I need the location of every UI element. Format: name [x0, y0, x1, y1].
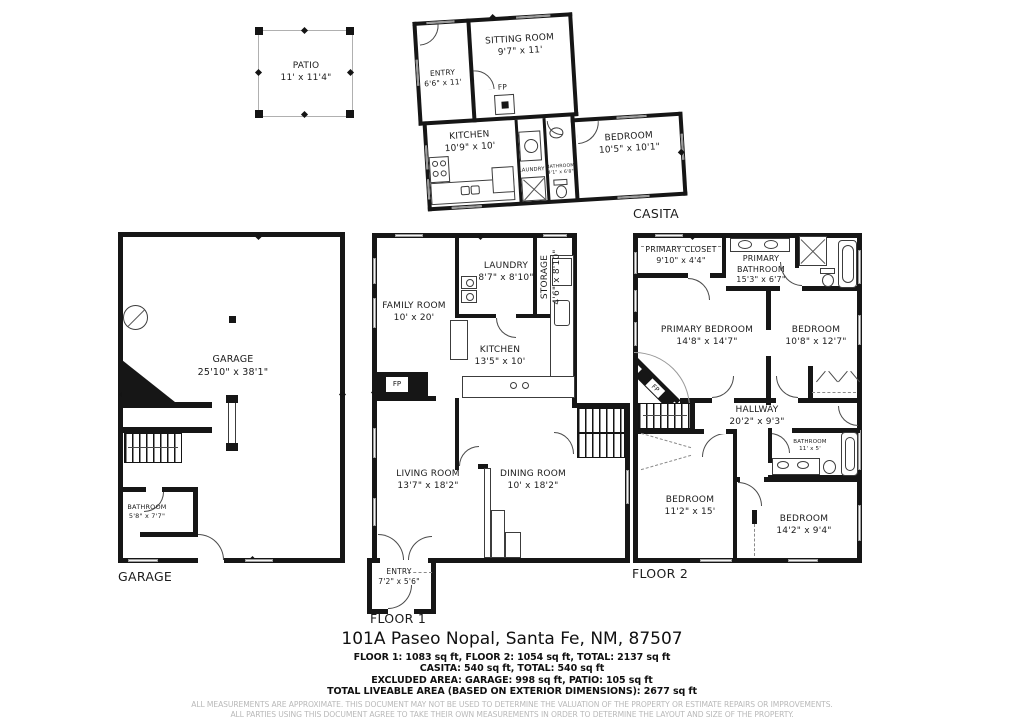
fixture [522, 382, 529, 389]
shape: GARAGE [213, 354, 254, 367]
beam [228, 398, 236, 448]
door-arc [554, 432, 574, 454]
sink-icon [460, 186, 470, 196]
bathtub-icon [841, 432, 858, 476]
shape: BEDROOM [792, 325, 840, 337]
floor2-bathroom-label: BATHROOM11' x 5' [778, 438, 842, 454]
shower-icon [799, 236, 827, 266]
shape: 10'5" x 10'1" [599, 142, 661, 158]
window [788, 559, 818, 562]
stove-icon [429, 156, 451, 183]
shape: 14'2" x 9'4" [776, 526, 831, 538]
living-room-label: LIVING ROOM13'7" x 18'2" [380, 468, 476, 494]
shape: 9'10" x 4'4" [656, 256, 705, 267]
shape: 5'8" x 7'7" [129, 512, 165, 521]
window [634, 322, 637, 346]
shape: LAUNDRY [518, 166, 544, 174]
window [634, 252, 637, 274]
shape: LAUNDRY [484, 261, 528, 273]
casita-kitchen-label: KITCHEN10'9" x 10' [425, 128, 514, 157]
casita-bathroom-label: BATHROOM4'1" x 6'8" [544, 160, 577, 180]
bathtub-icon [838, 240, 857, 288]
window [858, 250, 861, 284]
fixture [845, 437, 855, 471]
shape: BEDROOM [780, 514, 828, 526]
kitchen-counter [462, 376, 575, 398]
area-line: FLOOR 1: 1083 sq ft, FLOOR 2: 1054 sq ft… [0, 652, 1024, 663]
window [128, 559, 158, 562]
line [643, 415, 687, 416]
water-heater-closet [521, 176, 546, 201]
casita-plan: ENTRY6'6" x 11' SITTING ROOM9'7" x 11' F… [412, 0, 692, 218]
shape: 13'5" x 10' [475, 357, 526, 369]
wall [193, 487, 198, 537]
toilet-icon [823, 460, 836, 474]
window [373, 258, 376, 284]
dashed-line [641, 433, 691, 448]
floor1-stairs [577, 408, 625, 433]
shape: BEDROOM [666, 495, 714, 507]
wall-opening [772, 428, 792, 433]
sink-icon [764, 240, 778, 249]
wall [140, 532, 198, 537]
door-arc [408, 536, 432, 560]
shape: KITCHEN [480, 345, 520, 357]
shape: 13'7" x 18'2" [397, 481, 458, 493]
sink-icon [738, 240, 752, 249]
window [700, 559, 732, 562]
shape: 10' x 20' [394, 313, 435, 325]
door-arc [459, 446, 479, 466]
shape: FAMILY ROOM [382, 301, 446, 313]
wall [455, 398, 459, 470]
casita-laundry-label: LAUNDRY [516, 164, 547, 176]
family-room-label: FAMILY ROOM10' x 20' [372, 300, 456, 326]
shape: 11' x 11'4" [281, 73, 332, 85]
line [838, 371, 848, 383]
dryer-icon [461, 290, 477, 303]
address: 101A Paseo Nopal, Santa Fe, NM, 87507 [0, 629, 1024, 649]
shape: BATHROOM [793, 439, 826, 446]
shape: 10'9" x 10' [444, 141, 496, 156]
wall-opening [740, 477, 764, 482]
window [655, 234, 683, 237]
fixture [491, 166, 515, 193]
hallway-label: HALLWAY20'2" x 9'3" [715, 404, 799, 430]
solid-shape [226, 443, 238, 451]
garage-room-label: GARAGE25'10" x 38'1" [192, 354, 274, 380]
bedroom-left-label: BEDROOM11'2" x 15' [648, 494, 732, 520]
shape: 8'7" x 8'10" [478, 273, 533, 285]
area-line: TOTAL LIVEABLE AREA (BASED ON EXTERIOR D… [0, 686, 1024, 697]
dining-room-label: DINING ROOM10' x 18'2" [487, 468, 579, 494]
washer-icon [518, 130, 542, 161]
shape: 9'7" x 11' [498, 45, 544, 60]
disclaimer-line: ALL PARTIES USING THIS DOCUMENT AGREE TO… [0, 710, 1024, 720]
door-arc [776, 376, 798, 398]
shape: 11' x 5' [799, 446, 821, 453]
wall [431, 558, 436, 614]
stair-landing [122, 360, 180, 406]
patio-post [255, 110, 263, 118]
fixture [491, 510, 505, 558]
storage-label: STORAGE4'6" x 8'10" [539, 237, 565, 317]
bedroom-upper-label: BEDROOM10'8" x 12'7" [774, 324, 858, 350]
floor1-entry-label: ENTRY7'2" x 5'6" [370, 566, 428, 588]
window [245, 559, 273, 562]
shape: STORAGE [540, 255, 552, 299]
fixture [842, 245, 854, 283]
casita-sitting-room-label: SITTING ROOM9'7" x 11' [469, 30, 570, 62]
casita-bedroom-label: BEDROOM10'5" x 10'1" [578, 128, 681, 160]
floor-plan-sheet: PATIO11' x 11'4" ENTRY6'6" x 11' SITTING… [0, 0, 1024, 724]
shape: 10'8" x 12'7" [785, 337, 846, 349]
fixture [822, 274, 834, 287]
dashed-line [754, 524, 755, 556]
wall [733, 482, 737, 563]
shape: BATHROOM [127, 503, 166, 512]
footer: 101A Paseo Nopal, Santa Fe, NM, 87507 FL… [0, 629, 1024, 719]
line [816, 371, 826, 383]
window [858, 315, 861, 345]
fixture [556, 185, 568, 199]
shape: PRIMARY BATHROOM [725, 254, 797, 275]
patio-post [255, 27, 263, 35]
shape: 10' x 18'2" [508, 481, 559, 493]
floor1-laundry-label: LAUNDRY8'7" x 8'10" [464, 260, 548, 286]
wall-opening [704, 429, 726, 434]
wall-opening [712, 398, 734, 403]
casita-entry-label: ENTRY6'6" x 11' [415, 65, 470, 92]
fireplace-label: FP [386, 377, 408, 392]
primary-bathroom-label: PRIMARY BATHROOM15'3" x 6'7" [725, 252, 797, 288]
floor1-section-label: FLOOR 1 [370, 611, 426, 626]
fixture [510, 382, 517, 389]
window [858, 505, 861, 541]
door-arc [388, 585, 412, 609]
shape: 25'10" x 38'1" [198, 367, 269, 380]
solid-shape [122, 402, 212, 408]
wall [638, 273, 726, 278]
casita-section-label: CASITA [633, 206, 679, 221]
window [373, 428, 376, 458]
sink-icon [797, 461, 809, 469]
shape: 14'8" x 14'7" [676, 337, 737, 349]
door-arc [838, 406, 858, 426]
shape: DINING ROOM [500, 469, 566, 481]
fixture [466, 293, 474, 301]
shape: LIVING ROOM [396, 469, 459, 481]
floor2-section-label: FLOOR 2 [632, 566, 688, 581]
wall [752, 510, 757, 524]
window [373, 498, 376, 526]
garage-section-label: GARAGE [118, 569, 172, 584]
casita-fireplace-label: FP [492, 82, 513, 93]
bedroom-right-label: BEDROOM14'2" x 9'4" [762, 513, 846, 539]
sink-icon [777, 461, 789, 469]
area-line: CASITA: 540 sq ft, TOTAL: 540 sq ft [0, 663, 1024, 674]
line [128, 447, 178, 448]
garage-bathroom-label: BATHROOM5'8" x 7'7" [118, 500, 176, 524]
line [828, 371, 838, 383]
dashed-line [641, 455, 691, 470]
shape: 6'6" x 11' [424, 77, 462, 89]
door-arc [496, 318, 516, 338]
dashed-line [812, 392, 856, 393]
shape: FP [498, 82, 508, 92]
fixture [524, 139, 539, 154]
wall [118, 232, 345, 237]
shape: HALLWAY [736, 405, 779, 417]
area-line: EXCLUDED AREA: GARAGE: 998 sq ft, PATIO:… [0, 675, 1024, 686]
shape: 15'3" x 6'7" [736, 275, 785, 286]
primary-closet-label: PRIMARY CLOSET9'10" x 4'4" [645, 240, 717, 272]
window [395, 234, 423, 237]
door-arc [473, 69, 494, 90]
shape: 7'2" x 5'6" [378, 577, 420, 587]
wall [568, 12, 578, 116]
patio-post [346, 110, 354, 118]
floor1-stairs [577, 433, 625, 458]
door-arc [702, 433, 726, 457]
shape: 4'1" x 6'8" [548, 169, 575, 177]
water-heater-icon [123, 305, 148, 330]
shape: 11'2" x 15' [665, 507, 716, 519]
patio-post [346, 27, 354, 35]
shape: PRIMARY CLOSET [645, 245, 716, 256]
sink-icon [470, 185, 480, 195]
shape: ENTRY [386, 567, 411, 577]
shape: 4'6" x 8'10" [552, 249, 564, 304]
door-arc [378, 534, 404, 560]
floor1-kitchen-label: KITCHEN13'5" x 10' [455, 344, 545, 370]
wall-opening [776, 398, 798, 403]
door-arc [738, 482, 762, 506]
solid-shape [226, 395, 238, 403]
door-arc [198, 534, 224, 560]
solid-shape [501, 101, 508, 108]
shape [125, 307, 147, 329]
fixture [505, 532, 521, 558]
patio-label: PATIO11' x 11'4" [266, 60, 346, 86]
post [229, 316, 236, 323]
shape: PRIMARY BEDROOM [661, 325, 753, 337]
primary-bedroom-label: PRIMARY BEDROOM14'8" x 14'7" [645, 324, 769, 350]
door-arc [712, 376, 734, 398]
shape: PATIO [293, 61, 320, 73]
door-arc [688, 278, 710, 300]
window [858, 430, 861, 470]
disclaimer-line: ALL MEASUREMENTS ARE APPROXIMATE. THIS D… [0, 700, 1024, 710]
wall [633, 558, 862, 563]
wall [808, 366, 813, 398]
door-arc [419, 24, 440, 45]
window [626, 470, 629, 504]
window [634, 290, 637, 312]
